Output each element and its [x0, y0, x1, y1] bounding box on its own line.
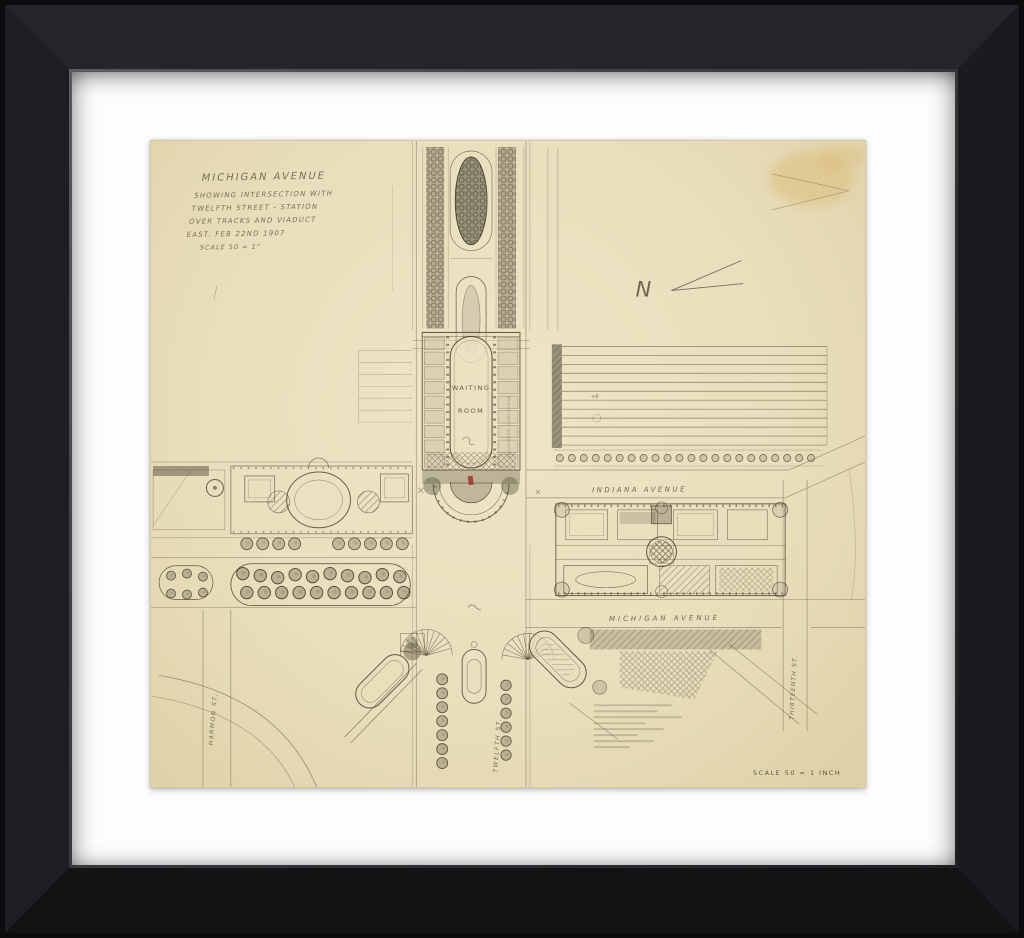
- railroad-tracks: +6: [552, 344, 827, 448]
- right-block-buildings: [554, 502, 787, 598]
- west-terrace-steps: [358, 350, 412, 422]
- title-line-5: EAST. FEB 22ND 1907: [186, 228, 287, 239]
- scale-label: SCALE 50 = 1 INCH: [753, 769, 841, 777]
- thirteenth-street-label: THIRTEENTH ST.: [788, 655, 798, 720]
- title-line-6: SCALE 50 = 1": [199, 243, 261, 252]
- harmon-street-label: HARMON ST.: [208, 693, 220, 746]
- waiting-room-label-2: ROOM: [458, 407, 484, 415]
- framed-artwork-photo: MICHIGAN AVENUE SHOWING INTERSECTION WIT…: [0, 0, 1024, 938]
- indiana-avenue: INDIANA AVENUE: [554, 450, 825, 494]
- title-line-3: TWELFTH STREET - STATION: [190, 202, 319, 213]
- concourse-label: PASSENGER CONCOURSE: [506, 395, 511, 458]
- median-trees-long: [237, 567, 410, 598]
- north-letter: N: [636, 278, 652, 302]
- michigan-avenue-label: MICHIGAN AVENUE: [609, 614, 720, 623]
- elevation-note: +6: [591, 394, 600, 400]
- station-approach-mall: [422, 147, 524, 362]
- paper-stain: [769, 145, 865, 206]
- drawing-paper: MICHIGAN AVENUE SHOWING INTERSECTION WIT…: [150, 140, 866, 788]
- indiana-avenue-label: INDIANA AVENUE: [592, 485, 687, 494]
- title-line-4: OVER TRACKS AND VIADUCT: [188, 215, 317, 226]
- boulevard-medians: [159, 564, 410, 606]
- twelfth-street-label: TWELFTH ST.: [492, 717, 503, 773]
- intersection-sketch-marks: [418, 488, 540, 610]
- station-building: WAITING ROOM PASSENGER CONCOURSE: [422, 332, 520, 470]
- sw-corner-building: [151, 629, 452, 787]
- waiting-room-label-1: WAITING: [452, 384, 491, 392]
- title-line-1: MICHIGAN AVENUE: [200, 171, 326, 184]
- red-accent-mark: [468, 476, 474, 485]
- station-exedra: [422, 452, 520, 522]
- title-block: MICHIGAN AVENUE SHOWING INTERSECTION WIT…: [182, 171, 337, 252]
- median-trees-short: [167, 569, 208, 599]
- sw-street-trees: [437, 674, 448, 769]
- title-line-2: SHOWING INTERSECTION WITH: [193, 189, 334, 200]
- left-block-buildings: [153, 458, 412, 534]
- left-block-tree-row: [241, 538, 408, 550]
- street-safety-island: [462, 641, 486, 703]
- north-arrow: N: [636, 261, 744, 302]
- plan-drawing: MICHIGAN AVENUE SHOWING INTERSECTION WIT…: [151, 141, 865, 787]
